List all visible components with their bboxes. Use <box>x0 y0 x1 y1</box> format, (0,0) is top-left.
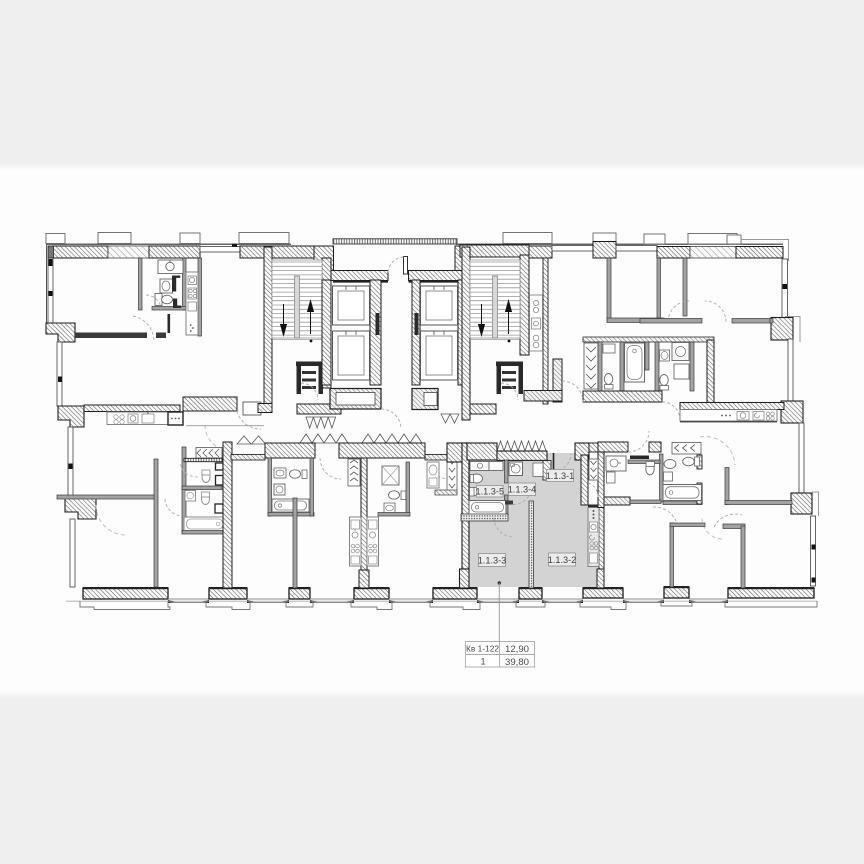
svg-text:Кв 1-122: Кв 1-122 <box>466 644 499 654</box>
svg-text:1.1.3-2: 1.1.3-2 <box>548 555 577 565</box>
svg-text:1.1.3-4: 1.1.3-4 <box>508 485 537 495</box>
svg-text:1.1.3-1: 1.1.3-1 <box>546 471 575 481</box>
svg-text:1.1.3-5: 1.1.3-5 <box>475 487 504 497</box>
svg-text:1.1.3-3: 1.1.3-3 <box>478 556 507 566</box>
svg-text:39,80: 39,80 <box>505 657 529 668</box>
svg-text:12,90: 12,90 <box>505 644 529 655</box>
svg-text:1: 1 <box>480 657 485 667</box>
